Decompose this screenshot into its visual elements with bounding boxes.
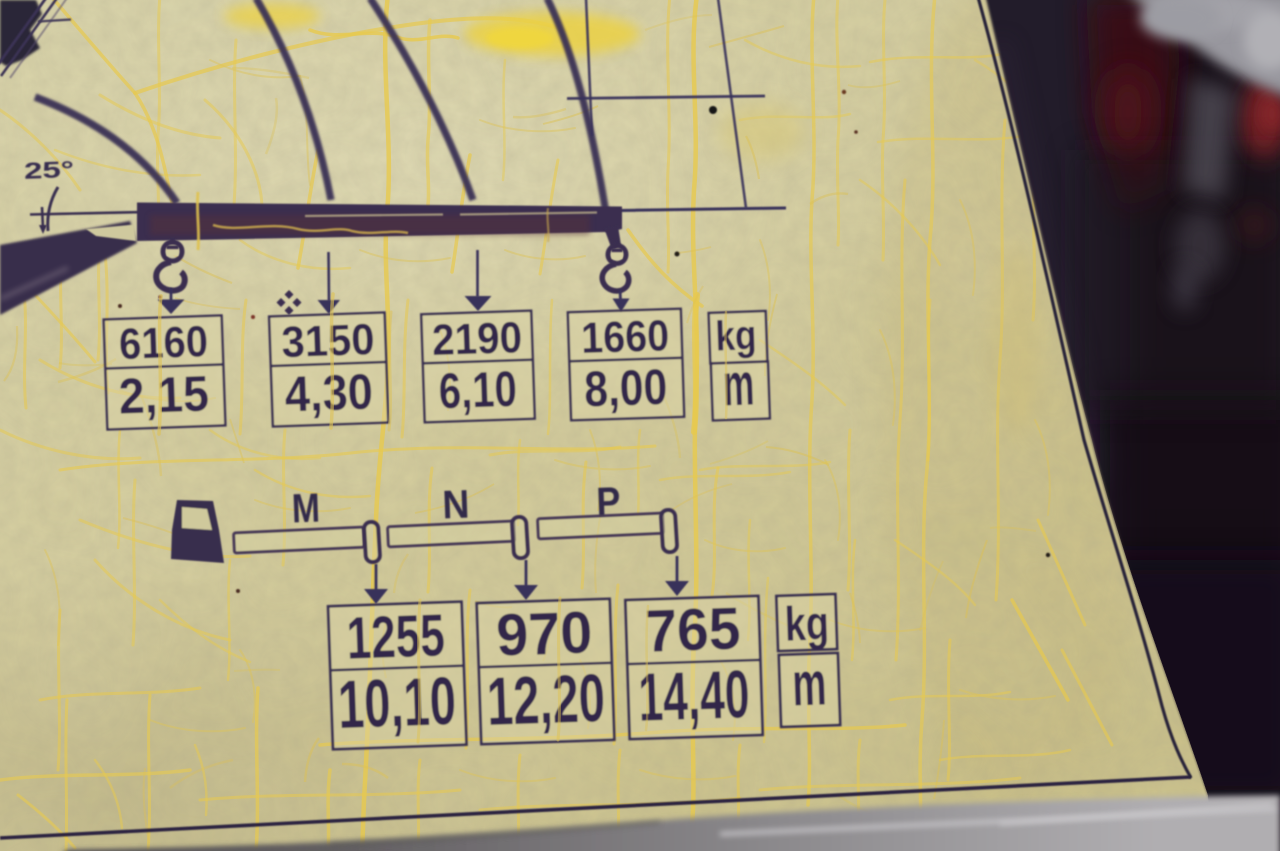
svg-text:6160: 6160 xyxy=(118,317,209,369)
svg-text:3150: 3150 xyxy=(281,315,376,367)
svg-text:M: M xyxy=(291,485,321,532)
svg-text:10,10: 10,10 xyxy=(337,663,458,743)
svg-text:765: 765 xyxy=(644,596,741,665)
svg-text:kg: kg xyxy=(784,597,830,651)
svg-text:P: P xyxy=(596,480,622,525)
svg-text:2,15: 2,15 xyxy=(118,365,210,424)
svg-text:12,20: 12,20 xyxy=(486,660,606,740)
svg-text:2190: 2190 xyxy=(431,313,523,365)
svg-text:25°: 25° xyxy=(24,156,75,184)
svg-text:8,00: 8,00 xyxy=(583,359,668,418)
svg-text:4,30: 4,30 xyxy=(284,364,374,423)
svg-text:m: m xyxy=(791,649,827,719)
svg-text:N: N xyxy=(442,483,471,528)
svg-text:1660: 1660 xyxy=(580,311,669,363)
svg-text:14,40: 14,40 xyxy=(637,656,750,735)
svg-text:1255: 1255 xyxy=(346,602,446,671)
svg-text:970: 970 xyxy=(495,599,593,668)
svg-text:6,10: 6,10 xyxy=(438,361,518,420)
